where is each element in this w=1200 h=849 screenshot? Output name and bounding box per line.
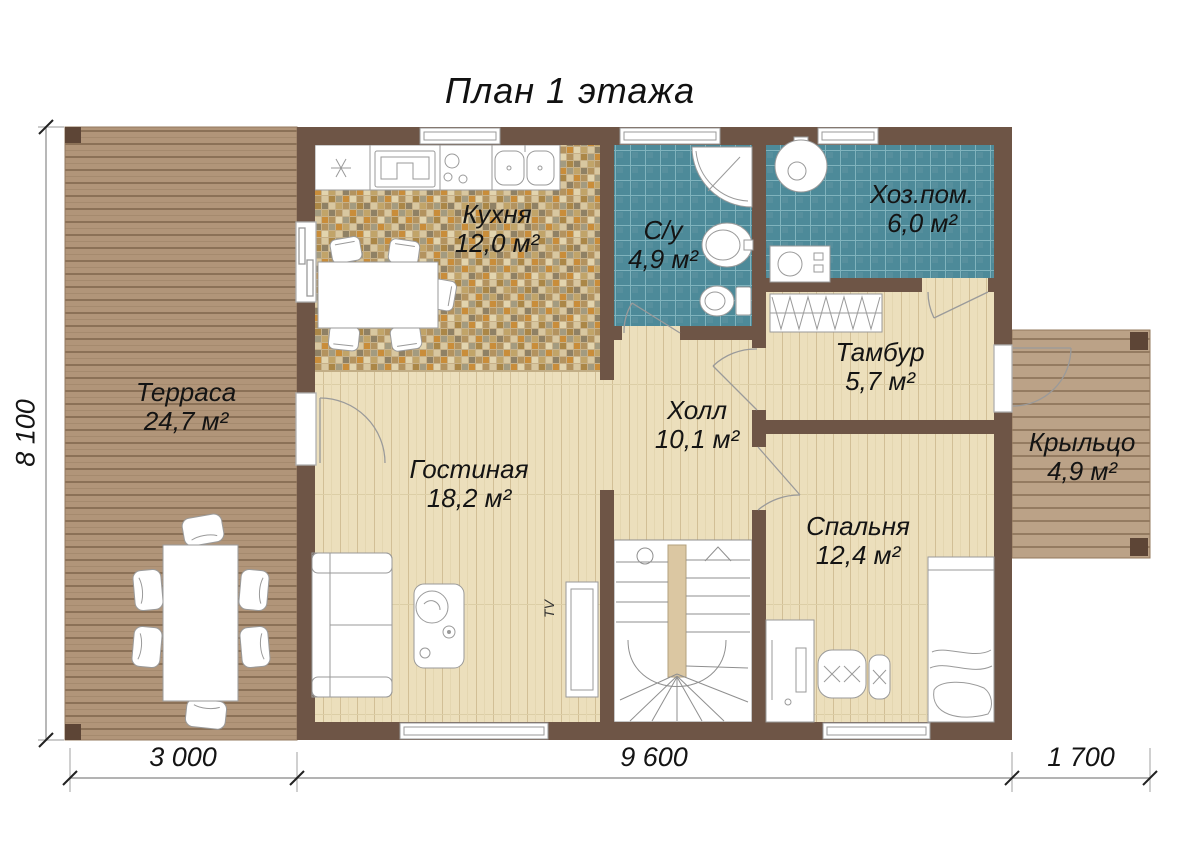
- window-bedroom: [823, 723, 930, 739]
- ottoman: [869, 655, 890, 699]
- room-area: 12,4 м²: [806, 541, 910, 570]
- room-name: Крыльцо: [1029, 428, 1136, 457]
- plan-title: План 1 этажа: [445, 70, 695, 112]
- desk: [766, 620, 814, 722]
- tv-stand: [566, 582, 598, 697]
- room-area: 4,9 м²: [628, 245, 698, 274]
- coffee-table: [414, 584, 464, 668]
- office-chair: [818, 650, 866, 698]
- dimension-house-height: 8 100: [11, 399, 42, 467]
- room-label-living: Гостиная 18,2 м²: [410, 455, 529, 513]
- room-name: Терраса: [136, 378, 236, 407]
- room-area: 6,0 м²: [870, 209, 974, 238]
- dimension-terrace-width: 3 000: [149, 742, 217, 773]
- room-label-kitchen: Кухня 12,0 м²: [455, 200, 539, 258]
- door-kitchen-terrace: [296, 222, 316, 302]
- room-name: Хоз.пом.: [870, 180, 974, 209]
- toilet-icon: [700, 286, 751, 316]
- window-living: [400, 723, 548, 739]
- bed: [928, 557, 994, 722]
- dimension-porch-width: 1 700: [1047, 742, 1115, 773]
- room-area: 10,1 м²: [655, 425, 739, 454]
- kitchen-counter: [315, 140, 560, 190]
- room-name: С/у: [628, 216, 698, 245]
- room-name: Холл: [655, 396, 739, 425]
- window-utility: [818, 128, 878, 144]
- staircase: [614, 540, 752, 722]
- floorplan-canvas: План 1 этажа Терраса 24,7 м² Кухня 12,0 …: [0, 0, 1200, 849]
- room-label-vestibule: Тамбур 5,7 м²: [835, 338, 924, 396]
- room-area: 4,9 м²: [1029, 457, 1136, 486]
- room-label-bathroom: С/у 4,9 м²: [628, 216, 698, 274]
- room-label-terrace: Терраса 24,7 м²: [136, 378, 236, 436]
- room-name: Кухня: [455, 200, 539, 229]
- window-kitchen: [420, 128, 500, 144]
- room-area: 18,2 м²: [410, 484, 529, 513]
- room-label-porch: Крыльцо 4,9 м²: [1029, 428, 1136, 486]
- room-label-bedroom: Спальня 12,4 м²: [806, 512, 910, 570]
- dimension-house-width: 9 600: [620, 742, 688, 773]
- room-area: 5,7 м²: [835, 367, 924, 396]
- sofa: [312, 553, 392, 697]
- room-name: Тамбур: [835, 338, 924, 367]
- washing-machine-icon: [770, 246, 830, 282]
- room-label-utility: Хоз.пом. 6,0 м²: [870, 180, 974, 238]
- room-label-hall: Холл 10,1 м²: [655, 396, 739, 454]
- window-bathroom: [620, 128, 720, 144]
- room-name: Спальня: [806, 512, 910, 541]
- bath-sink-icon: [702, 223, 753, 267]
- room-name: Гостиная: [410, 455, 529, 484]
- tv-label: TV: [541, 587, 559, 631]
- room-area: 12,0 м²: [455, 229, 539, 258]
- wardrobe: [770, 294, 882, 332]
- room-area: 24,7 м²: [136, 407, 236, 436]
